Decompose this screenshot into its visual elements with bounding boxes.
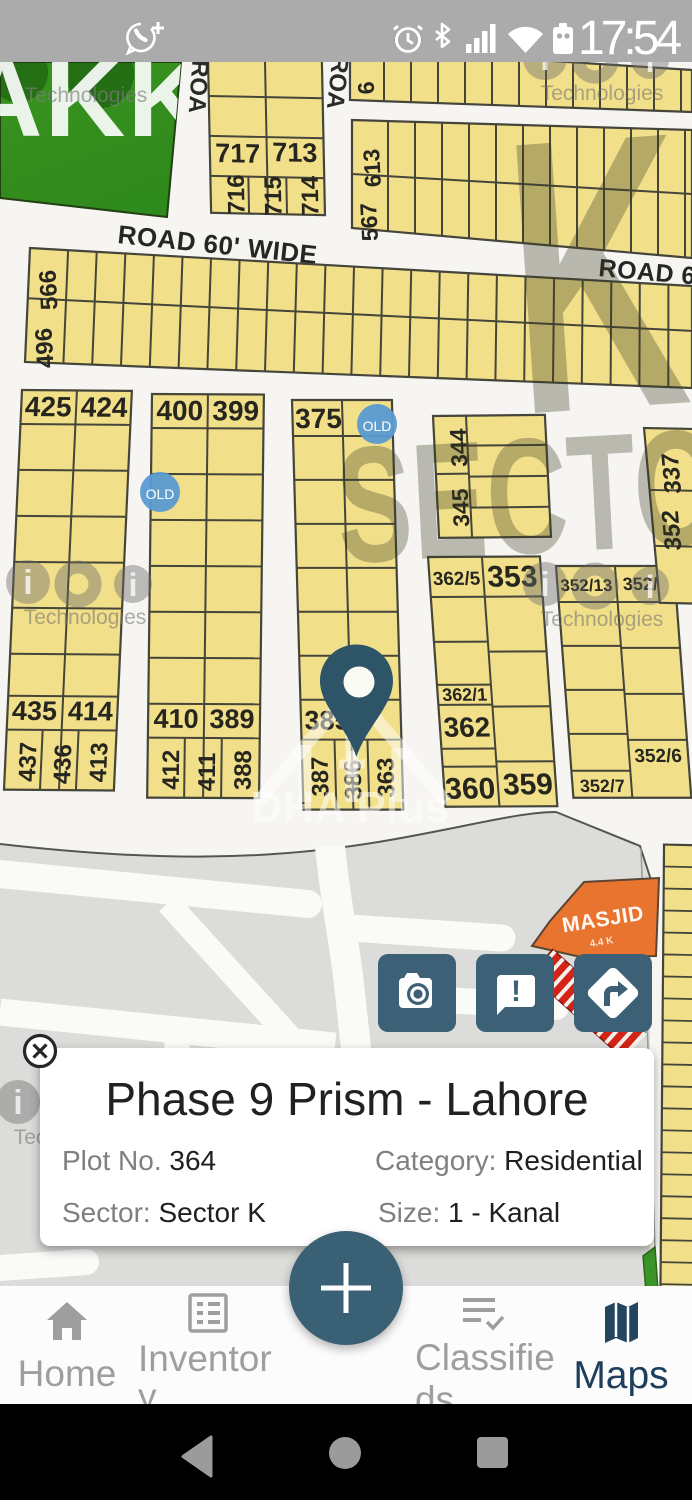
svg-text:DHA Plus: DHA Plus (251, 783, 450, 832)
svg-text:ds: ds (415, 1379, 454, 1404)
svg-text:OLD: OLD (363, 418, 392, 434)
svg-text:714: 714 (297, 175, 325, 216)
svg-text:i: i (23, 564, 32, 602)
svg-text:ROA: ROA (183, 62, 214, 114)
svg-text:360: 360 (444, 773, 496, 806)
svg-text:425: 425 (24, 391, 72, 422)
svg-text:567: 567 (355, 202, 383, 242)
svg-text:400: 400 (156, 395, 203, 426)
svg-text:715: 715 (260, 176, 288, 217)
svg-text:352/7: 352/7 (579, 776, 625, 796)
svg-text:352/6: 352/6 (634, 746, 683, 767)
svg-text:i: i (540, 62, 549, 78)
svg-text:413: 413 (85, 742, 114, 782)
svg-text:Classifie: Classifie (415, 1337, 555, 1378)
svg-text:389: 389 (209, 704, 254, 734)
svg-text:i: i (129, 567, 138, 603)
svg-text:i: i (646, 569, 655, 605)
svg-text:Home: Home (18, 1353, 117, 1394)
svg-text:17:54: 17:54 (578, 12, 681, 62)
svg-text:!: ! (511, 975, 521, 1008)
svg-text:435: 435 (11, 696, 57, 726)
svg-text:OLD: OLD (146, 486, 175, 502)
svg-text:424: 424 (80, 391, 128, 422)
svg-text:i: i (540, 566, 549, 604)
svg-text:Inventor: Inventor (138, 1338, 272, 1379)
svg-text:i: i (13, 1084, 22, 1122)
svg-text:ROA: ROA (321, 62, 353, 110)
svg-text:717: 717 (215, 138, 261, 169)
svg-text:411: 411 (194, 753, 221, 792)
svg-text:362/1: 362/1 (441, 685, 487, 705)
svg-text:Technologies: Technologies (25, 84, 148, 107)
svg-text:566: 566 (34, 269, 63, 310)
svg-text:414: 414 (67, 696, 113, 726)
svg-text:436: 436 (49, 744, 78, 784)
svg-text:412: 412 (158, 750, 185, 790)
svg-text:713: 713 (272, 137, 318, 168)
svg-text:362: 362 (442, 712, 491, 743)
svg-text:613: 613 (358, 148, 386, 188)
svg-text:410: 410 (153, 704, 198, 734)
svg-text:Technologies: Technologies (24, 606, 147, 629)
svg-text:437: 437 (14, 742, 43, 782)
svg-text:Maps: Maps (573, 1354, 668, 1397)
svg-text:i: i (646, 62, 655, 79)
svg-text:6: 6 (352, 80, 379, 95)
svg-text:716: 716 (223, 174, 251, 215)
svg-text:496: 496 (30, 327, 59, 368)
svg-text:359: 359 (502, 768, 554, 801)
svg-text:Technologies: Technologies (541, 608, 664, 631)
svg-text:399: 399 (212, 395, 259, 426)
svg-text:Technologies: Technologies (541, 82, 664, 105)
svg-text:y: y (138, 1376, 157, 1404)
